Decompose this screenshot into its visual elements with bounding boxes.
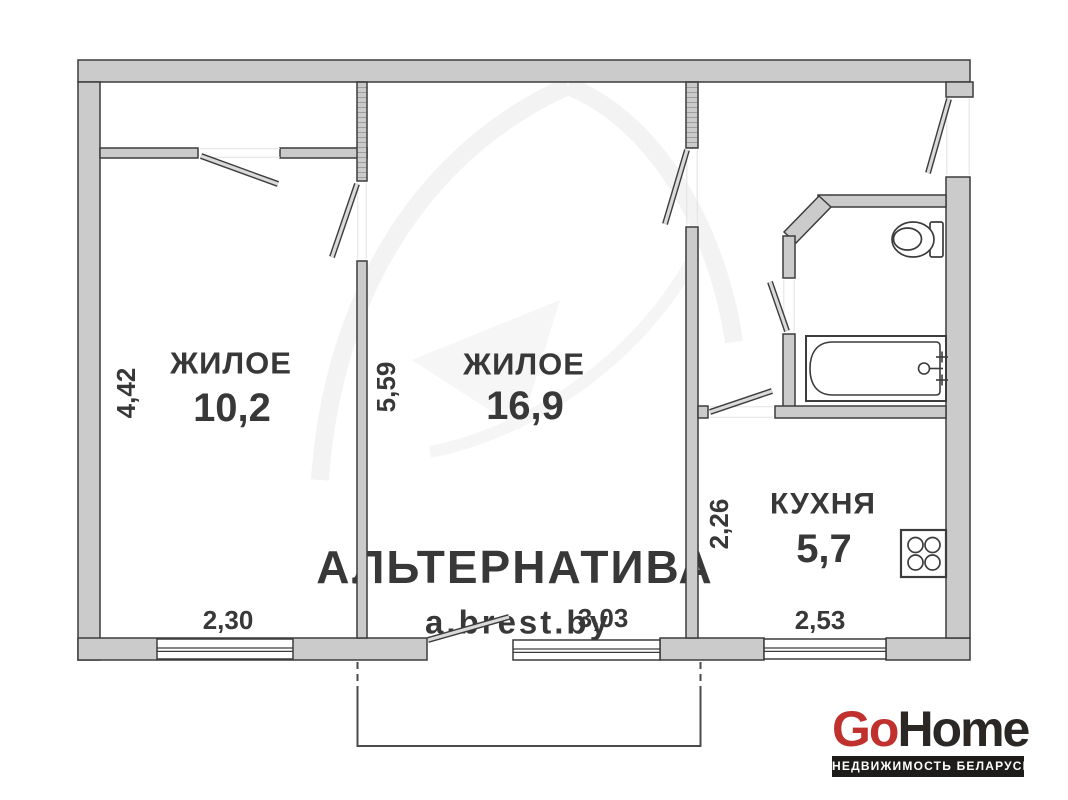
bathtub-icon xyxy=(806,336,948,401)
wall-outer-right xyxy=(946,177,970,638)
watermark-sail-arc xyxy=(568,86,734,342)
gohome-tagline: НЕДВИЖИМОСТЬ БЕЛАРУСИ xyxy=(832,756,1024,777)
toilet-icon xyxy=(892,222,943,257)
window-room1 xyxy=(157,639,293,659)
windows xyxy=(157,639,886,660)
room-labels: ЖИЛОЕ 10,2 ЖИЛОЕ 16,9 КУХНЯ 5,7 xyxy=(169,346,876,572)
wall-closet-left xyxy=(100,148,198,158)
wall-outer-bottom xyxy=(886,638,970,660)
wall-rooms-divider-top xyxy=(357,82,367,181)
gohome-go: Go xyxy=(832,701,897,757)
wall-outer-bottom xyxy=(660,638,764,660)
balcony-outline xyxy=(358,662,701,746)
gohome-home: Home xyxy=(897,701,1028,757)
room1-area: 10,2 xyxy=(193,386,271,430)
door-closet-room1 xyxy=(201,156,278,184)
floorplan-drawing: АЛЬТЕРНАТИВА a.brest.by xyxy=(0,0,1068,800)
door-room1-room2 xyxy=(332,184,357,257)
door-bathroom xyxy=(770,282,787,331)
dim-room1-width: 2,30 xyxy=(203,605,254,635)
wall-room2-hall-top xyxy=(686,82,698,148)
door-entrance xyxy=(928,99,949,173)
wall-kitchen-door-stub xyxy=(698,406,708,418)
wall-rooms-divider-bottom xyxy=(357,261,367,638)
gohome-wordmark: GoHome xyxy=(832,704,1024,754)
wall-outer-left xyxy=(78,82,100,660)
dim-room2-height: 5,59 xyxy=(371,362,401,413)
window-room2 xyxy=(513,640,660,660)
wall-room2-hall-bottom xyxy=(686,227,698,638)
room2-area: 16,9 xyxy=(486,384,564,428)
floorplan-page: АЛЬТЕРНАТИВА a.brest.by xyxy=(0,0,1068,800)
dim-room2-width: 3,03 xyxy=(578,603,629,633)
wall-bathroom-left-upper xyxy=(783,236,795,278)
window-kitchen xyxy=(764,639,886,659)
wall-bathroom-bottom xyxy=(775,406,946,418)
dim-room1-height: 4,42 xyxy=(111,368,141,419)
wall-closet-right xyxy=(280,148,367,158)
watermark-brand-text: АЛЬТЕРНАТИВА xyxy=(316,541,713,593)
door-kitchen xyxy=(710,391,772,412)
wall-bathroom-left-lower xyxy=(783,334,795,407)
dim-kitchen-width: 2,53 xyxy=(795,605,846,635)
dim-kitchen-height: 2,26 xyxy=(704,499,734,550)
gohome-logo: GoHome НЕДВИЖИМОСТЬ БЕЛАРУСИ xyxy=(832,704,1024,777)
stove-icon xyxy=(901,530,946,577)
wall-entrance-stub xyxy=(946,82,973,97)
kitchen-area: 5,7 xyxy=(796,527,852,571)
wall-outer-top xyxy=(78,60,970,82)
kitchen-name: КУХНЯ xyxy=(770,488,876,521)
wall-bathroom-top xyxy=(818,195,946,207)
room1-name: ЖИЛОЕ xyxy=(169,346,292,381)
room2-name: ЖИЛОЕ xyxy=(462,347,585,382)
